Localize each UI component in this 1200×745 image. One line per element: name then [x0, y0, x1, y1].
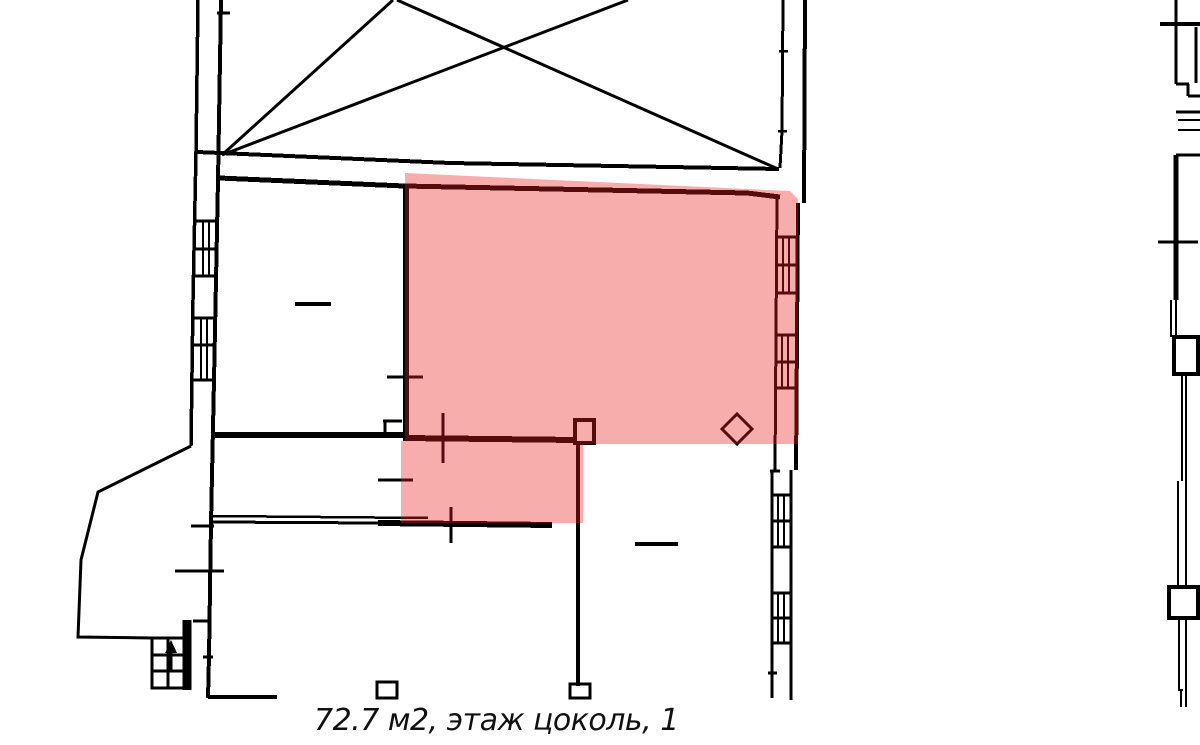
- area-caption: 72.7 м2, этаж цоколь, 1: [314, 703, 679, 738]
- column-marker: [570, 684, 590, 698]
- staircase-icon: [152, 620, 187, 690]
- shaft-cross-diagonals: [222, 0, 778, 169]
- column-marker: [377, 682, 397, 698]
- floor-plan: 72.7 м2, этаж цоколь, 1: [0, 0, 1200, 745]
- floor-plan-canvas: 72.7 м2, этаж цоколь, 1: [0, 0, 1200, 745]
- left-exterior-wall: [175, 0, 230, 698]
- highlight-region[interactable]: [401, 173, 798, 523]
- adjacent-building-fragment: [1158, 0, 1200, 707]
- crossed-shaft-box: [197, 0, 805, 203]
- annex-outline: [78, 446, 191, 638]
